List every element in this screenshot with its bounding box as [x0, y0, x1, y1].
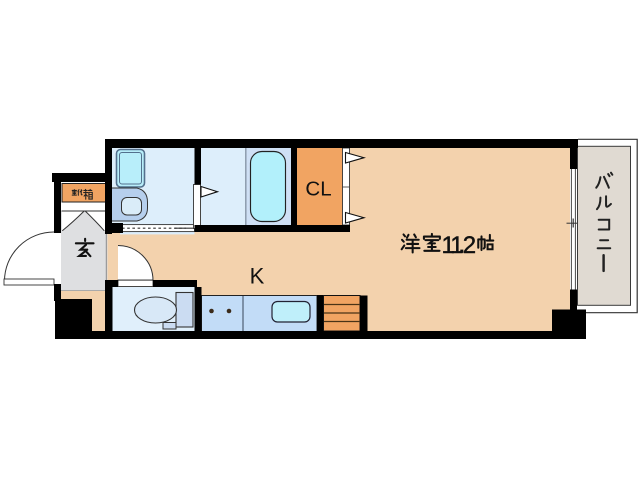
svg-text:CL: CL: [305, 178, 331, 201]
svg-text:1: 1: [450, 232, 463, 259]
svg-text:2: 2: [463, 232, 476, 259]
svg-text:K: K: [250, 264, 265, 289]
